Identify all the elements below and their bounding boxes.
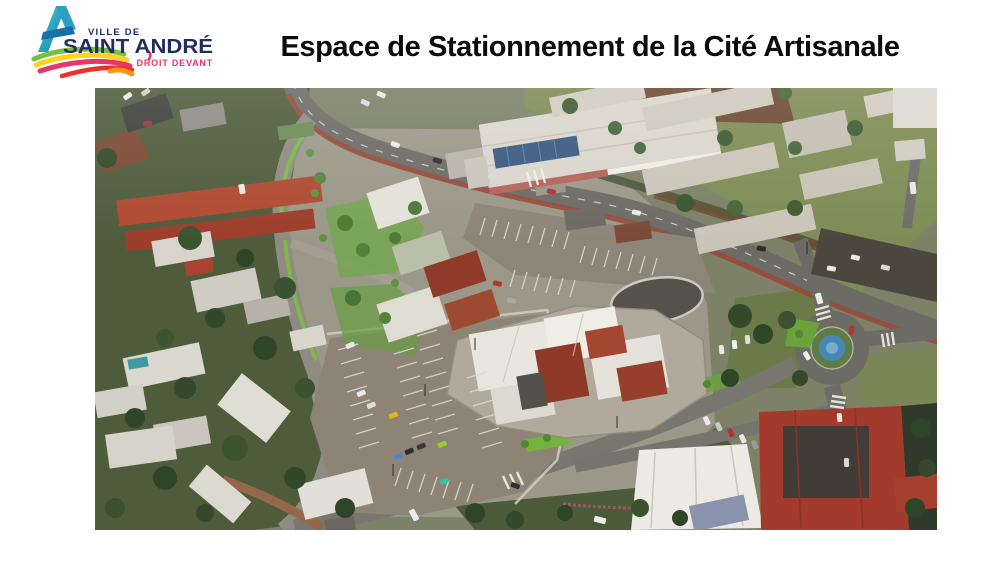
logo-tagline: DROIT DEVANT xyxy=(137,58,213,68)
aerial-photo-scene xyxy=(95,88,937,530)
page-title: Espace de Stationnement de la Cité Artis… xyxy=(240,31,940,64)
atmospheric-haze xyxy=(95,88,937,530)
city-logo: VILLE DE SAINT ANDRÉ DROIT DEVANT xyxy=(20,2,240,86)
logo-city-name: SAINT ANDRÉ xyxy=(63,35,213,58)
city-logo-graphic: VILLE DE SAINT ANDRÉ DROIT DEVANT xyxy=(20,2,240,86)
aerial-photo xyxy=(95,88,937,530)
slide: VILLE DE SAINT ANDRÉ DROIT DEVANT Espace… xyxy=(0,0,1000,565)
